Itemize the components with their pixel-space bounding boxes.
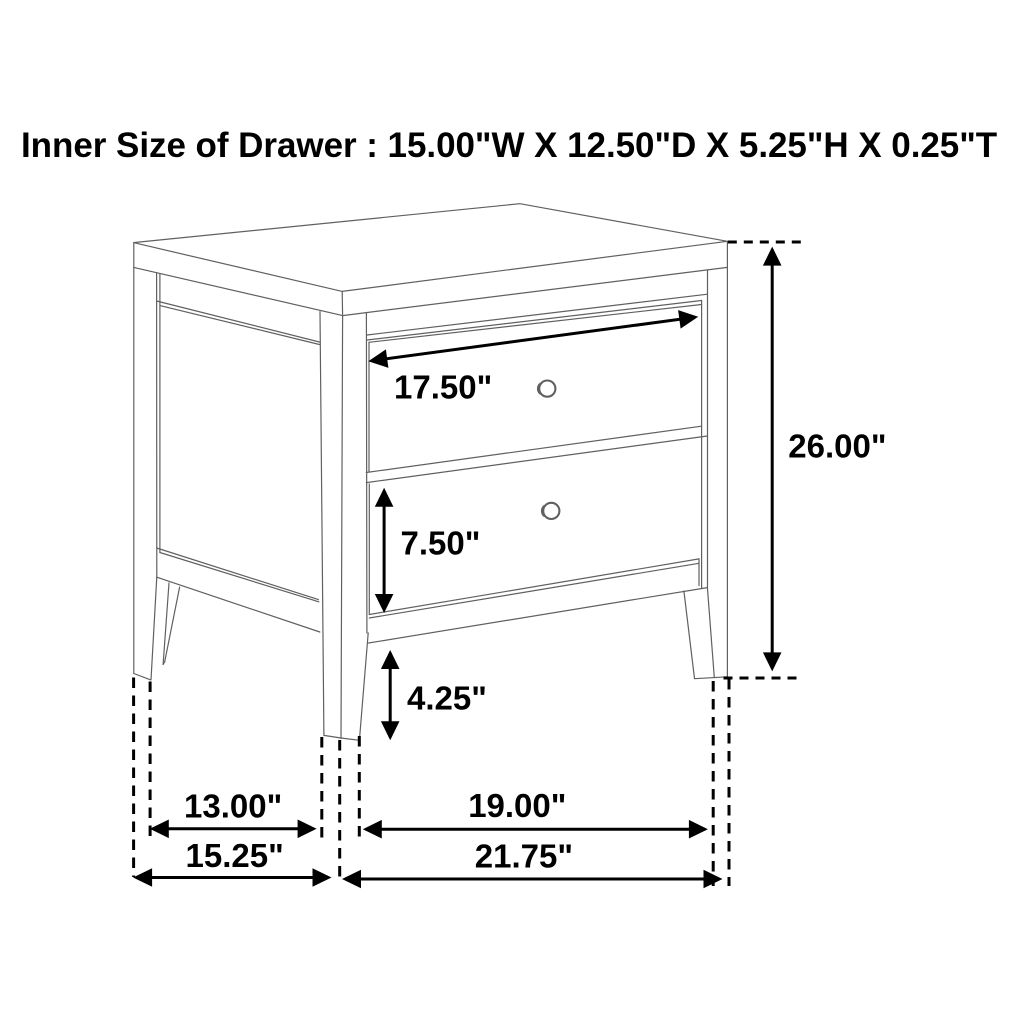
svg-text:7.50": 7.50" — [401, 525, 481, 562]
svg-text:17.50": 17.50" — [394, 369, 492, 406]
svg-text:Inner Size of Drawer : 15.00"W: Inner Size of Drawer : 15.00"W X 12.50"D… — [21, 126, 997, 165]
svg-text:4.25": 4.25" — [407, 679, 487, 716]
svg-text:26.00": 26.00" — [788, 428, 886, 465]
svg-text:21.75": 21.75" — [475, 838, 573, 875]
svg-text:13.00": 13.00" — [184, 787, 282, 824]
svg-text:19.00": 19.00" — [468, 787, 566, 824]
svg-text:15.25": 15.25" — [186, 837, 284, 874]
